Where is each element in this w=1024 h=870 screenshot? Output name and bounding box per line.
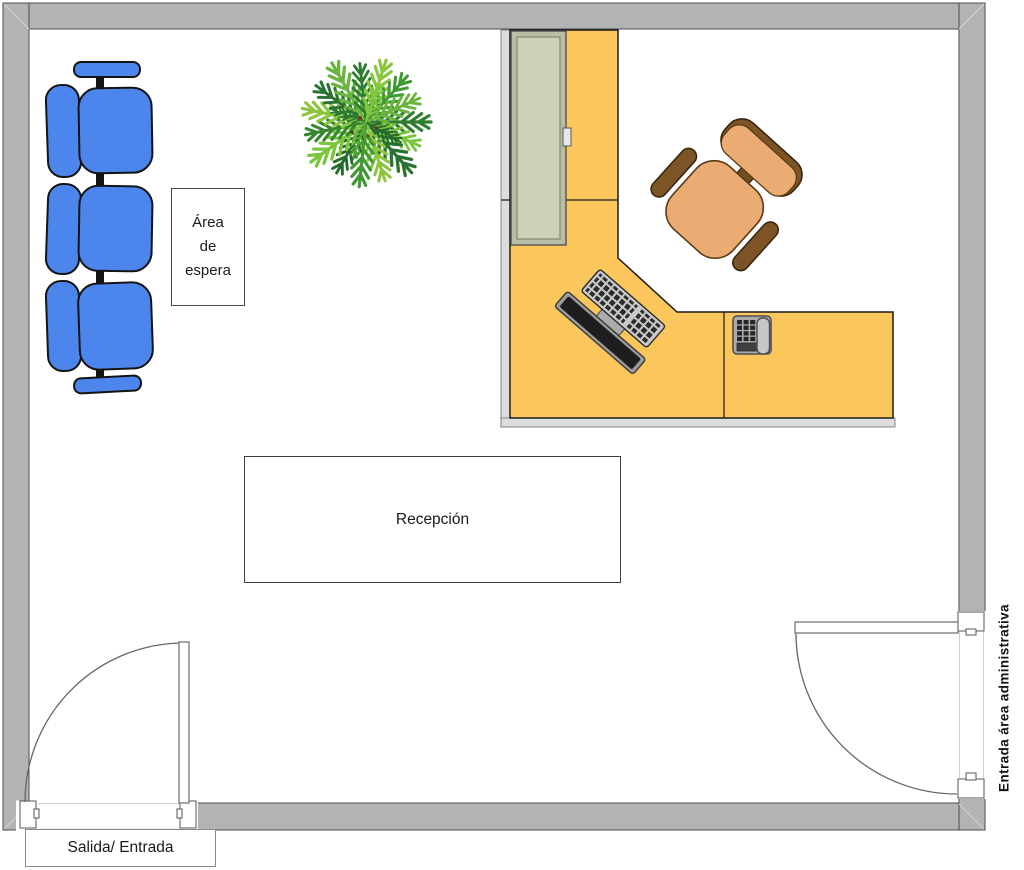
telephone	[733, 316, 771, 354]
waiting-area-label-line1: Área	[192, 211, 224, 235]
waiting-area-label-line3: espera	[185, 259, 231, 283]
entrance-door-leaf	[179, 642, 189, 803]
waiting-bench	[45, 62, 153, 394]
exit-entrance-label-box: Salida/ Entrada	[25, 829, 216, 867]
bench-backrest	[45, 183, 81, 274]
waiting-area-label-box: Área de espera	[171, 188, 245, 306]
floor-plan: Área de espera Recepción Salida/ Entrada…	[0, 0, 1024, 870]
waiting-area-label-line2: de	[200, 235, 217, 259]
floor-plan-drawing	[0, 0, 1024, 870]
plant	[300, 57, 431, 188]
cabinet	[511, 31, 571, 245]
bench-seat	[78, 282, 154, 370]
exit-entrance-label: Salida/ Entrada	[68, 839, 174, 857]
phone-display	[737, 343, 758, 351]
bench-backrest	[45, 280, 81, 371]
bench-seat	[78, 185, 152, 271]
bench-backrest	[45, 84, 81, 177]
reception-label-box: Recepción	[244, 456, 621, 583]
admin-entrance-label: Entrada área administrativa	[997, 604, 1012, 792]
bench-armrest-bottom	[74, 375, 142, 393]
entrance-door	[25, 642, 189, 803]
admin-door	[795, 622, 958, 794]
cabinet-handle	[563, 128, 571, 146]
bench-armrest-top	[74, 62, 140, 77]
admin-door-leaf	[795, 622, 958, 633]
entrance-door-swing-arc	[25, 643, 184, 802]
office-chair	[640, 100, 822, 282]
reception-label: Recepción	[396, 511, 469, 529]
bench-seat	[78, 87, 152, 173]
phone-handset	[757, 318, 770, 354]
admin-door-swing-arc	[796, 633, 957, 794]
